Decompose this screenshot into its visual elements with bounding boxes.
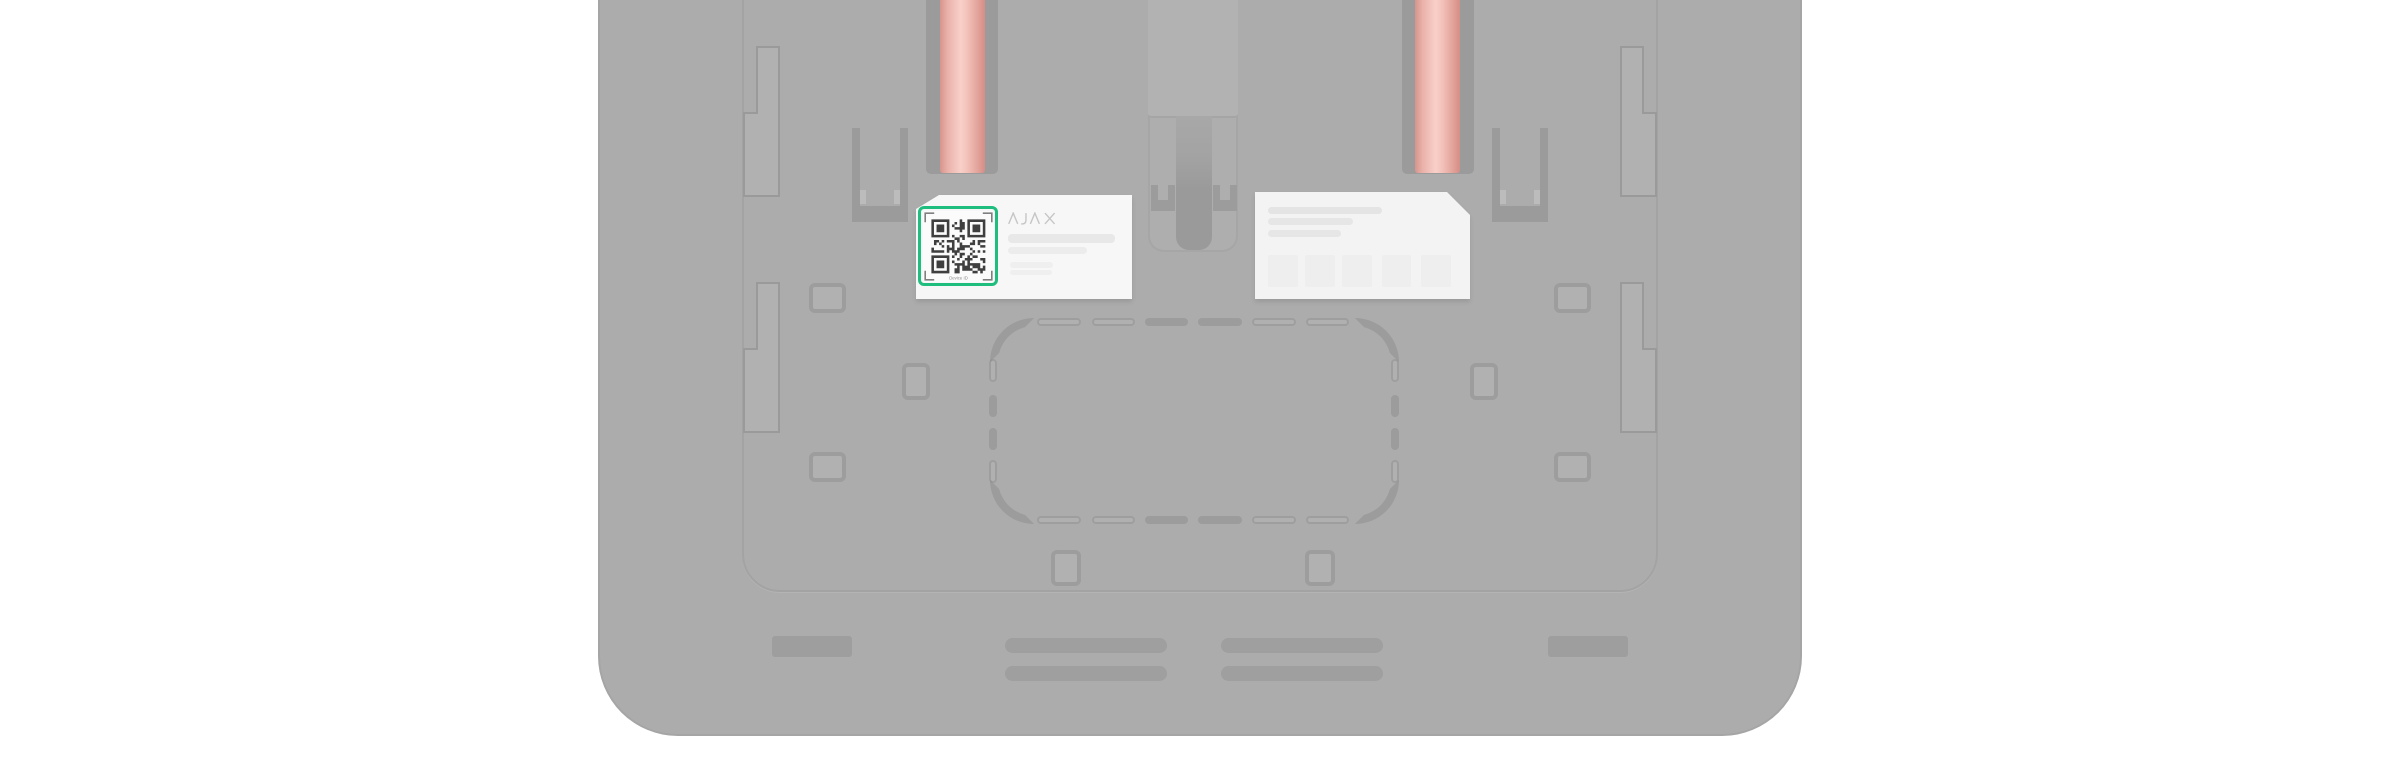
spring-clip-right-icon [1492,128,1548,222]
dash [1092,516,1135,524]
mount-hole [902,363,930,400]
illustration-canvas: Device ID [0,0,2400,780]
dash [1145,516,1188,524]
bottom-slot-right [1548,636,1628,657]
sticker-text-bar [1008,247,1087,254]
dash [1391,359,1399,382]
dash [1037,516,1081,524]
dash [1391,395,1399,417]
dash [1198,516,1242,524]
mount-hole [1305,550,1335,586]
certification-mark [1268,255,1298,287]
vent-bar [1005,638,1167,653]
clamp-comb-right-icon [1213,185,1237,211]
dash [989,428,997,450]
dash [1252,516,1296,524]
certification-mark [1382,255,1411,287]
mount-hole [1051,550,1081,586]
ajax-logo [1008,212,1056,225]
dash [989,359,997,382]
certification-mark [1421,255,1451,287]
sticker-text-bar [1268,218,1353,225]
power-cable-right [1415,0,1460,173]
certification-sticker [1255,192,1470,299]
l-cutout-bottom-right-icon [1620,282,1657,433]
dash [989,460,997,483]
sticker-text-bar [1010,270,1052,275]
l-cutout-top-right-icon [1620,46,1657,197]
dash [1252,318,1296,326]
dash [1145,318,1188,326]
dash [1391,460,1399,483]
dash [1092,318,1135,326]
dash [989,395,997,417]
sticker-text-bar [1268,207,1382,214]
dash [1198,318,1242,326]
sticker-text-bar [1010,262,1053,268]
l-cutout-bottom-left-icon [743,282,780,433]
cable-clamp-cover [1148,0,1238,118]
sticker-text-bar [1268,230,1341,237]
certification-mark [1305,255,1335,287]
mount-hole [1470,363,1498,400]
certification-sticker-face [1255,192,1470,299]
power-cable-left [940,0,985,173]
qr-highlight-frame [918,206,998,286]
mount-hole [1554,283,1591,313]
vent-bar [1005,666,1167,681]
l-cutout-top-left-icon [743,46,780,197]
vent-bar [1221,666,1383,681]
certification-mark [1342,255,1372,287]
mount-hole [809,452,846,482]
mount-hole [809,283,846,313]
mount-hole [1554,452,1591,482]
dash [1391,428,1399,450]
cable-clamp-strap [1176,116,1212,250]
dash [1037,318,1081,326]
clamp-comb-left-icon [1151,185,1175,211]
dash [1306,318,1349,326]
vent-bar [1221,638,1383,653]
dash [1306,516,1349,524]
spring-clip-left-icon [852,128,908,222]
sticker-text-bar [1008,234,1115,243]
device-sticker: Device ID [916,195,1132,299]
bottom-slot-left [772,636,852,657]
